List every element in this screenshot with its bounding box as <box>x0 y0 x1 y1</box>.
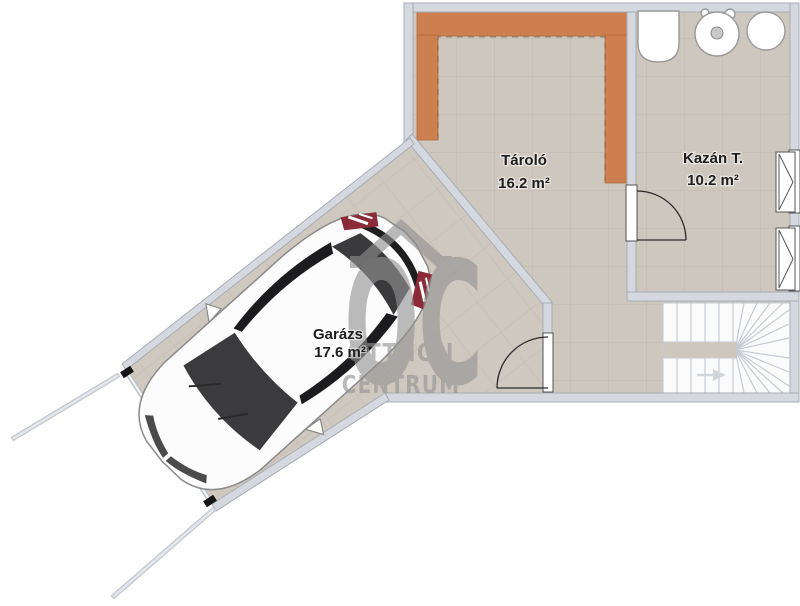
floorplan-page: OC OTTHON CENTRUM Tároló 16.2 m² Kazán T… <box>0 0 800 606</box>
stair-landing <box>663 342 737 358</box>
boiler-cap-icon <box>711 27 723 39</box>
room-name-boiler: Kazán T. <box>683 150 743 167</box>
wall-boiler-bottom <box>627 292 799 301</box>
round-tank-icon <box>747 12 785 50</box>
wall-storage-left <box>404 3 413 143</box>
room-area-garage: 17.6 m² <box>314 344 366 361</box>
wall-divider-upper <box>627 12 636 186</box>
floorplan-svg: OC OTTHON CENTRUM Tároló 16.2 m² Kazán T… <box>0 0 800 606</box>
watermark-line2: CENTRUM <box>342 371 461 400</box>
room-name-storage: Tároló <box>501 152 547 169</box>
wall-top <box>404 3 799 12</box>
room-area-storage: 16.2 m² <box>498 175 550 192</box>
stairs <box>663 303 790 393</box>
radiator-icon <box>776 152 795 212</box>
radiator-icon <box>776 228 795 290</box>
room-area-boiler: 10.2 m² <box>687 172 739 189</box>
water-tank-icon <box>638 11 679 62</box>
room-name-garage: Garázs <box>313 326 363 343</box>
watermark: OC OTTHON CENTRUM <box>342 225 482 423</box>
wall-divider-lower <box>627 241 636 298</box>
wall-door-jamb <box>543 303 552 335</box>
